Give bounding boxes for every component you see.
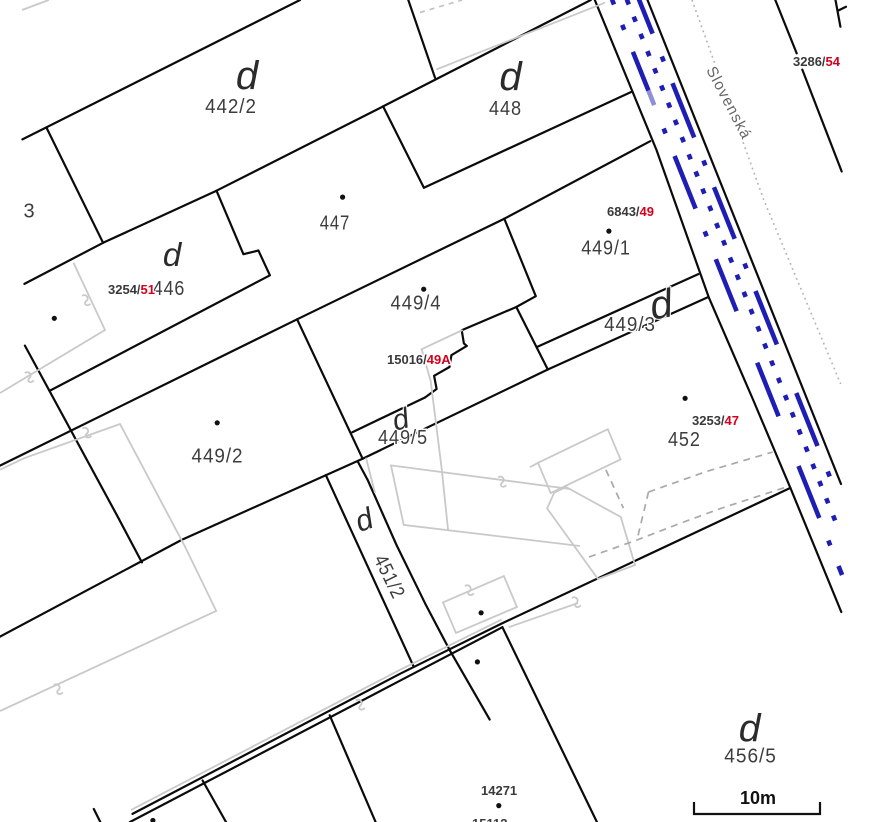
svg-text:14271: 14271 [481, 783, 517, 798]
svg-text:6843/49: 6843/49 [607, 204, 654, 219]
svg-text:3286/54: 3286/54 [793, 54, 841, 69]
svg-text:3253/47: 3253/47 [692, 413, 739, 428]
svg-text:452: 452 [668, 429, 701, 451]
svg-text:d: d [739, 708, 762, 751]
svg-text:449/2: 449/2 [192, 446, 244, 468]
svg-text:15112: 15112 [472, 816, 507, 822]
svg-text:d: d [236, 54, 260, 98]
svg-text:449/4: 449/4 [391, 293, 442, 315]
svg-text:d: d [499, 55, 523, 99]
svg-text:449/3: 449/3 [604, 314, 656, 336]
svg-text:448: 448 [489, 98, 522, 120]
svg-text:10m: 10m [740, 788, 776, 808]
svg-text:447: 447 [320, 213, 350, 235]
svg-text:449/1: 449/1 [581, 238, 631, 260]
svg-text:442/2: 442/2 [205, 96, 257, 118]
svg-text:15016/49A: 15016/49A [387, 352, 451, 367]
svg-text:d: d [163, 236, 183, 273]
svg-text:3254/51: 3254/51 [108, 282, 155, 297]
svg-text:3: 3 [23, 201, 35, 223]
svg-text:446: 446 [153, 278, 186, 300]
